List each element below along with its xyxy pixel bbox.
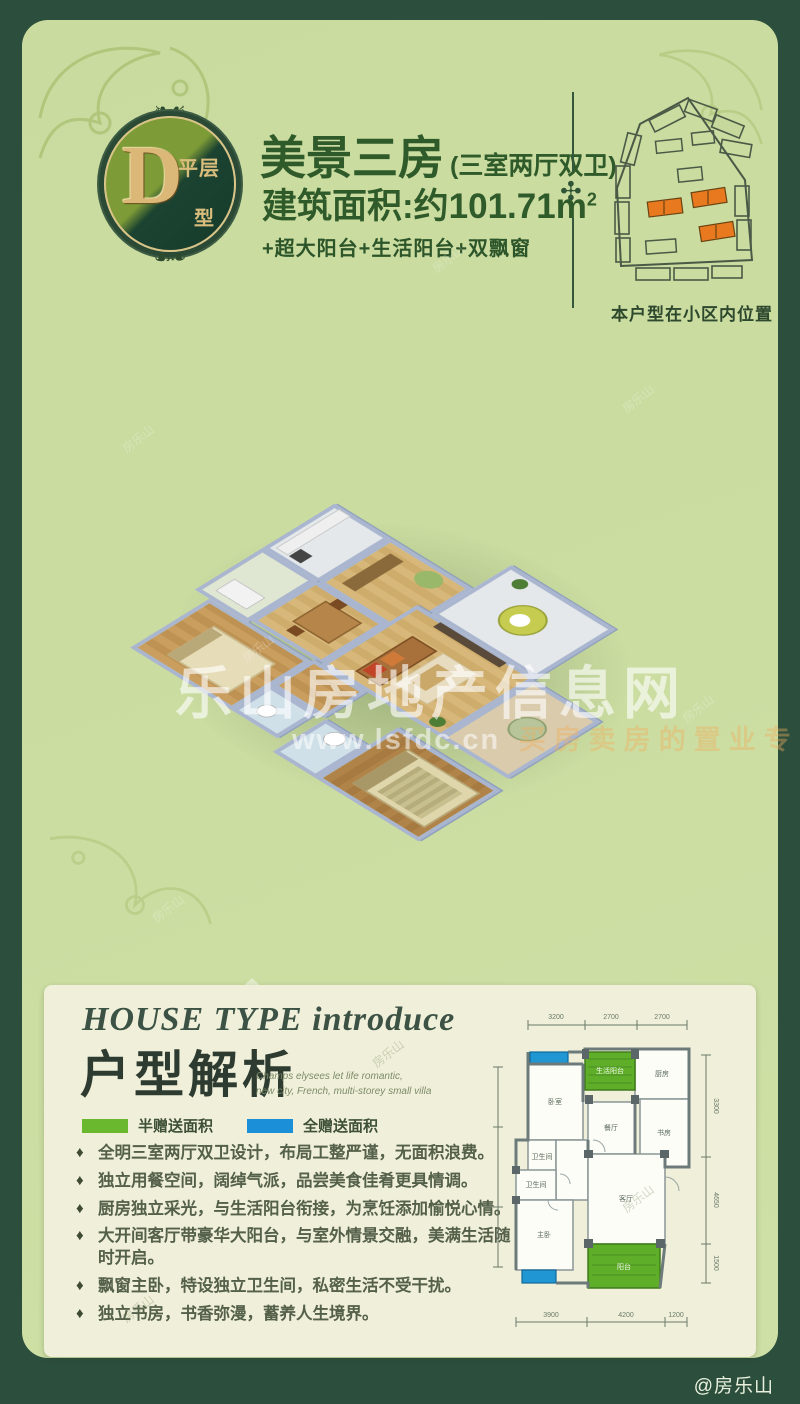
bay-window-top [530,1052,568,1064]
watermark-tagline: 买房卖房的置业专家 [519,725,800,755]
dim-label: 1200 [668,1312,684,1319]
feature-line: +超大阳台+生活阳台+双飘窗 [262,232,531,261]
dim-label: 2700 [603,1014,619,1021]
badge-label-bottom: 型 [194,202,214,231]
room-label: 卧室 [548,1097,562,1106]
dim-label: 3300 [712,1098,719,1114]
dim-label: 3200 [548,1014,564,1021]
room-label: 厨房 [655,1069,669,1078]
dim-label: 3900 [543,1312,559,1319]
list-item: 独立用餐空间，阔绰气派，品尝美食佳肴更具情调。 [74,1171,512,1193]
corner-watermark: @房乐山 [694,1371,774,1398]
flourish-icon: ✣ [560,178,582,204]
badge-label-top: 平层 [178,152,220,181]
list-item: 大开间客厅带豪华大阳台，与室外情景交融，美满生活随时开启。 [74,1226,512,1270]
room-label: 阳台 [617,1262,631,1271]
bay-window-bottom [522,1270,556,1283]
watermark-url-line: www.lsfdc.cn 买房卖房的置业专家 [292,718,800,757]
area-legend: 半赠送面积 全赠送面积 [82,1115,402,1136]
lace-ornament-bottom: ☙❧ [154,245,185,270]
legend-label-full-gift: 全赠送面积 [303,1115,378,1136]
legend-label-half-gift: 半赠送面积 [138,1115,213,1136]
intro-subtitle-line1: Champs elysees let life romantic, [256,1069,431,1084]
room-label: 书房 [657,1128,671,1137]
floorplan-3d-render: 乐山房地产信息网 www.lsfdc.cn 买房卖房的置业专家 [92,352,708,964]
list-item: 飘窗主卧，特设独立卫生间，私密生活不受干扰。 [74,1276,512,1298]
dim-label: 4200 [618,1312,634,1319]
siteplan-map [600,90,780,302]
area-line: 建筑面积:约101.71m2 [262,178,597,229]
room-label: 卫生间 [526,1180,547,1189]
room-label: 餐厅 [604,1123,618,1132]
house-type-intro-panel: HOUSE TYPE introduce 户型解析 Champs elysees… [44,985,756,1357]
highlighted-buildings [647,187,735,241]
selling-points-list: 全明三室两厅双卫设计，布局工整严谨，无面积浪费。 独立用餐空间，阔绰气派，品尝美… [74,1143,512,1331]
room-label: 卫生间 [532,1152,553,1161]
dim-label: 1500 [712,1255,719,1271]
legend-swatch-full-gift [247,1119,293,1133]
badge-letter: D [122,134,183,218]
unit-title: 美景三房 [260,132,444,184]
divider: ✣ [572,92,574,308]
unit-title-suffix: (三室两厅双卫) [450,152,617,180]
dim-label: 2700 [654,1014,670,1021]
house-type-poster: ❧☙ D 平层 型 ☙❧ 美景三房(三室两厅双卫) 建筑面积:约101.71m2… [0,0,800,1404]
intro-title-en: HOUSE TYPE introduce [82,1001,455,1039]
list-item: 厨房独立采光，与生活阳台衔接，为烹饪添加愉悦心情。 [74,1199,512,1221]
list-item: 独立书房，书香弥漫，蓄养人生境界。 [74,1304,512,1326]
room-label: 主卧 [537,1230,551,1239]
legend-swatch-half-gift [82,1119,128,1133]
floorplan-2d: 卧室 生活阳台 厨房 餐厅 书房 卫生间 卫生间 主卧 客厅 阳台 3200 2… [488,1007,750,1345]
room-hall [556,1140,588,1200]
room-label: 客厅 [619,1194,633,1203]
unit-type-badge: ❧☙ D 平层 型 ☙❧ [96,100,242,264]
list-item: 全明三室两厅双卫设计，布局工整严谨，无面积浪费。 [74,1143,512,1165]
intro-subtitle-line2: new city, French, multi-storey small vil… [256,1084,431,1099]
siteplan-caption: 本户型在小区内位置 [602,300,782,325]
room-label: 生活阳台 [596,1066,624,1075]
area-sup: 2 [587,189,597,209]
intro-subtitle-en: Champs elysees let life romantic, new ci… [256,1069,431,1099]
area-text: 建筑面积:约101.71m [262,187,587,226]
dim-label: 4650 [712,1192,719,1208]
watermark-url: www.lsfdc.cn [292,724,500,756]
